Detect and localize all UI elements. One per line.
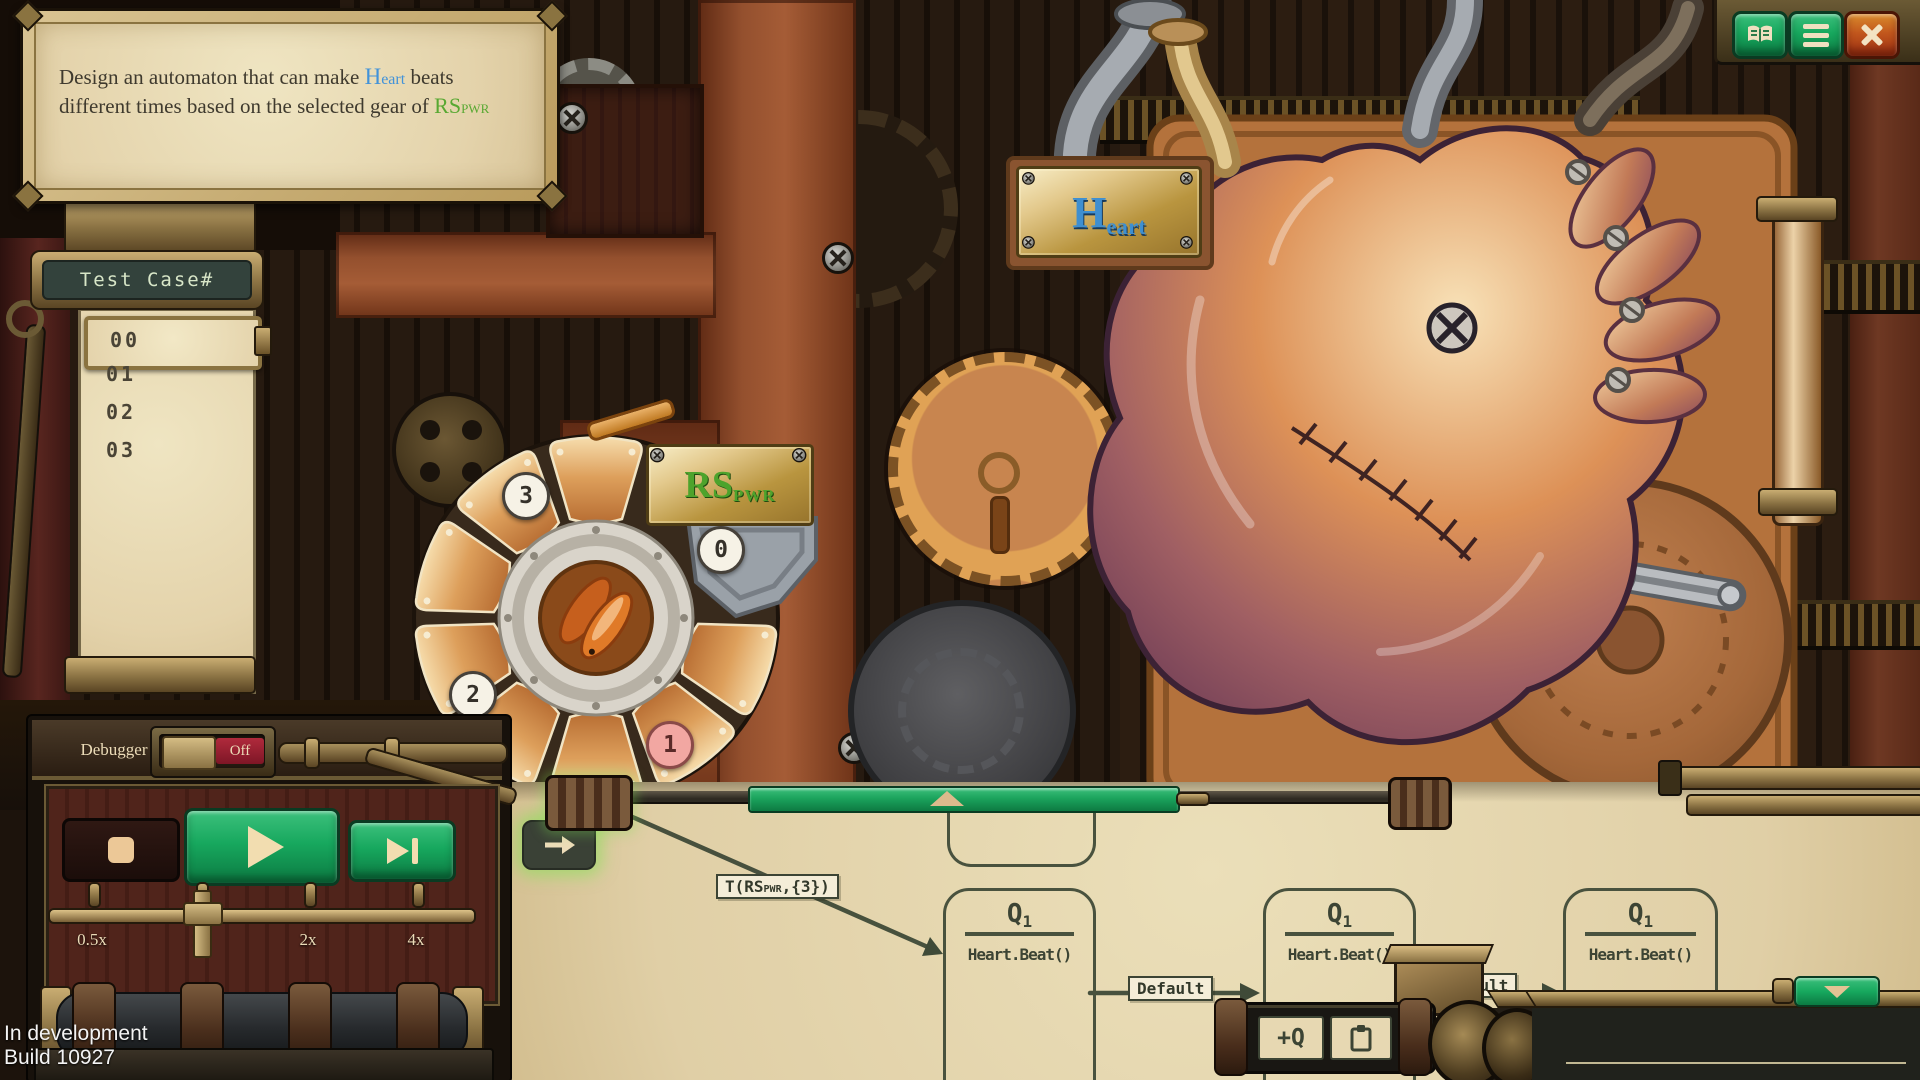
right-pipe-flange-bottom [1758,488,1838,516]
debugger-toggle-knob[interactable] [162,736,216,770]
speed-label-4x[interactable]: 4x [386,930,446,950]
right-rail-1 [1660,766,1920,790]
build-status-line1: In development [4,1022,148,1046]
state-rule [965,932,1074,936]
dropdown-triangle-icon [1824,986,1850,998]
transition-label-default-1[interactable]: Default [1128,976,1213,1001]
right-rail-cap [1658,760,1682,796]
rod-coupler-right [1388,777,1452,830]
testcase-top-cap [64,196,256,254]
add-state-button[interactable]: +Q [1258,1016,1324,1060]
right-pipe-flange-top [1756,196,1838,222]
state-title: Q1 [1266,899,1413,931]
screw-icon [1180,236,1193,249]
heart-plate-small: eart [1106,214,1146,239]
state-title: Q1 [946,899,1093,931]
stop-button[interactable] [62,818,180,882]
divider-bar[interactable] [748,786,1180,813]
step-button[interactable] [348,820,456,882]
rs-plate-big: RS [684,464,733,506]
heart-plate-big: H [1072,188,1106,237]
heart-plate: Heart [1016,166,1202,258]
dial-position-1-selected[interactable]: 1 [646,721,694,769]
testcase-row-knob[interactable] [254,326,272,356]
testcase-title: Test Case# [80,269,214,291]
rod-coupler-left [545,775,633,831]
speed-label-05x[interactable]: 0.5x [62,930,122,950]
manual-button[interactable] [1732,11,1788,59]
speed-slider-handle-bar[interactable] [183,902,223,926]
close-button[interactable] [1844,11,1900,59]
dial-position-3[interactable]: 3 [502,472,550,520]
step-forward-icon [387,838,418,864]
console-input-line[interactable] [1566,1062,1906,1064]
rs-plate-text: RSPWR [684,463,775,507]
instruction-text: Design an automaton that can make Heart … [59,63,509,119]
instruction-box: Design an automaton that can make Heart … [20,8,560,204]
right-rail-2 [1686,794,1920,816]
debugger-state: Off [230,743,251,760]
screw-icon [650,448,664,462]
machinery-brass-lid [1382,944,1494,964]
testcase-row[interactable]: 01 [106,362,136,386]
testcase-bottom-cap [64,656,256,694]
debugger-state-plate: Off [216,738,264,764]
screw-icon [792,448,806,462]
toolbar-clamp-right [1398,998,1432,1076]
dial-position-0[interactable]: 0 [697,526,745,574]
clipboard-icon [1349,1024,1373,1052]
screw-icon [1022,236,1035,249]
menu-button[interactable] [1788,11,1844,59]
testcase-row[interactable]: 02 [106,400,136,424]
state-action: Heart.Beat() [1566,945,1715,964]
testcase-header-plate: Test Case# [42,260,252,300]
build-status: In development Build 10927 [4,1022,148,1070]
console-pipe-joint [304,737,320,769]
book-icon [1745,24,1775,46]
rs-plate: RSPWR [646,444,814,526]
state-rule [1285,932,1394,936]
paste-button[interactable] [1330,1016,1392,1060]
wood-beam-horizontal [336,232,716,318]
speed-label-2x[interactable]: 2x [278,930,338,950]
transition-label-rspwr[interactable]: T(RSPWR,{3}) [716,874,839,899]
screw-icon [556,102,588,134]
circled-x-screw [1429,305,1475,351]
toolbar-clamp-left [1214,998,1248,1076]
speed-tick [88,882,101,908]
testcase-row[interactable]: 03 [106,438,136,462]
right-pipe [1772,200,1824,526]
screw-icon [822,242,854,274]
state-title: Q1 [1566,899,1715,931]
state-action: Heart.Beat() [946,945,1093,964]
testcase-header-frame: Test Case# [30,250,264,310]
debugger-toggle[interactable]: Off [150,726,276,778]
heart-plate-text: Heart [1072,187,1146,238]
dial-position-2[interactable]: 2 [449,671,497,719]
state-rule [1585,932,1695,936]
speed-slider-rail[interactable] [48,908,476,924]
play-icon [248,826,284,868]
menu-icon [1803,24,1829,29]
testcase-row-label: 00 [110,328,140,352]
rspwr-ref: RSPWR [434,94,489,118]
divider-triangle-icon [930,791,964,806]
stop-icon [108,837,134,863]
build-status-line2: Build 10927 [4,1046,148,1070]
screw-icon [1022,172,1035,185]
start-arrow-icon [542,835,576,855]
game-screen: RSPWR 3 2 1 0 [0,0,1920,1080]
dropdown-bracket [1772,978,1794,1004]
speed-tick [412,882,425,908]
rs-plate-small: PWR [733,486,776,505]
speed-tick [304,882,317,908]
console-dropdown-button[interactable] [1794,976,1880,1007]
heart-ref: Heart [365,65,406,89]
screw-icon [1180,172,1193,185]
output-console[interactable] [1532,1000,1920,1080]
play-button[interactable] [184,808,340,886]
state-node-q1-a[interactable]: Q1 Heart.Beat() [943,888,1096,1080]
divider-rod-right [1176,792,1210,806]
